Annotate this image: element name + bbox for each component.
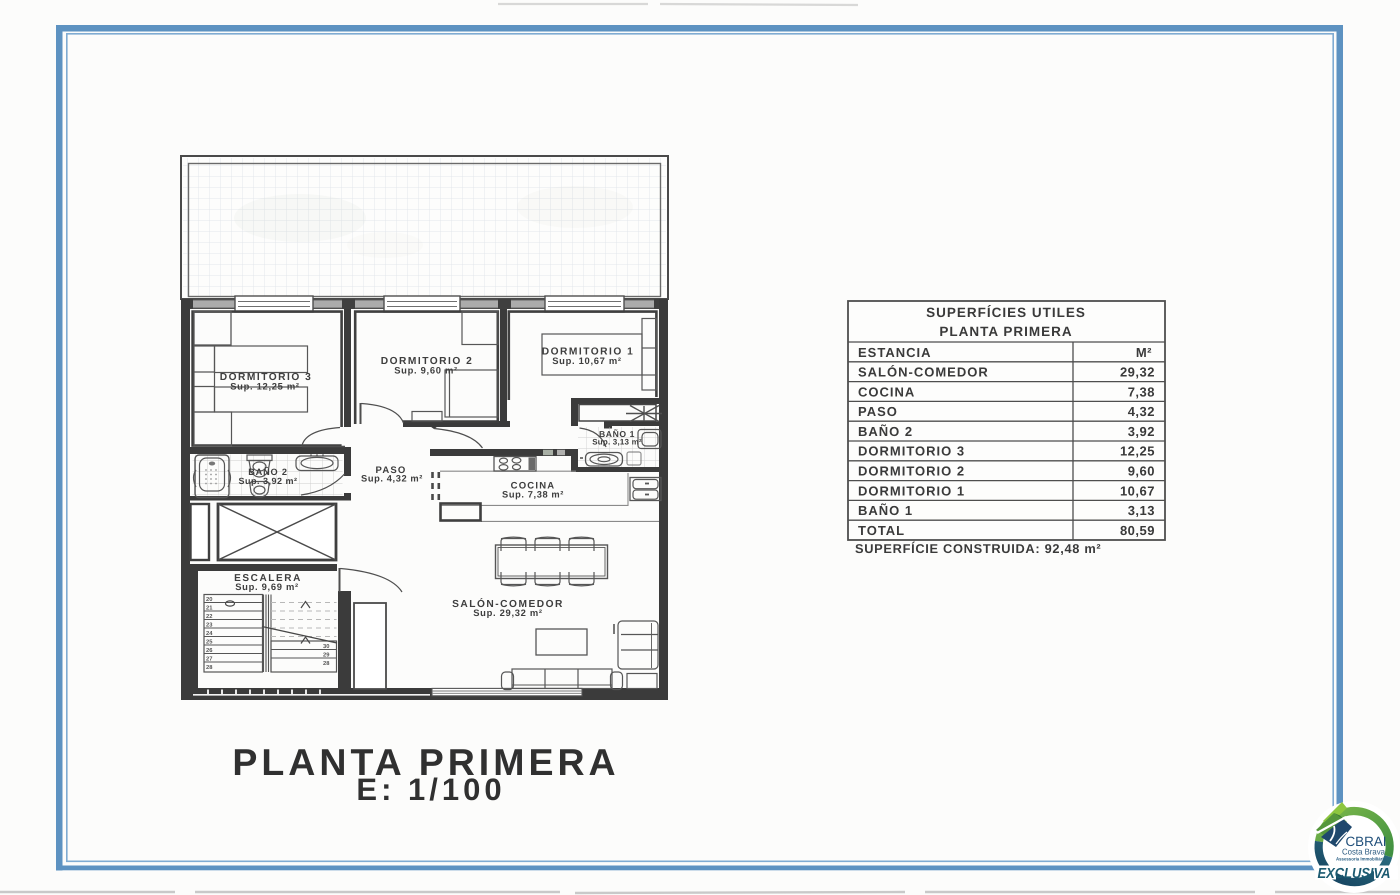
svg-text:22: 22 <box>206 613 212 620</box>
svg-text:DORMITORIO 3: DORMITORIO 3 <box>858 444 965 459</box>
svg-text:10,67: 10,67 <box>1120 483 1155 498</box>
svg-text:29,32: 29,32 <box>1120 365 1155 380</box>
svg-text:COCINA: COCINA <box>858 384 915 399</box>
svg-text:4,32: 4,32 <box>1128 404 1155 419</box>
svg-text:PASO: PASO <box>858 404 898 419</box>
svg-text:20: 20 <box>206 596 212 603</box>
svg-text:26: 26 <box>206 647 213 654</box>
svg-text:Sup. 3,92 m²: Sup. 3,92 m² <box>238 476 297 486</box>
svg-text:Costa Brava: Costa Brava <box>1342 846 1385 856</box>
svg-text:24: 24 <box>206 630 213 637</box>
svg-text:E: 1/100: E: 1/100 <box>356 772 505 807</box>
svg-text:ESTANCIA: ESTANCIA <box>858 345 931 360</box>
svg-text:Sup. 9,60 m²: Sup. 9,60 m² <box>394 365 458 376</box>
svg-text:Sup. 12,25 m²: Sup. 12,25 m² <box>230 381 300 392</box>
svg-text:TOTAL: TOTAL <box>858 523 905 538</box>
svg-text:9,60: 9,60 <box>1128 464 1155 479</box>
svg-text:BAÑO 2: BAÑO 2 <box>858 424 913 439</box>
svg-text:7,38: 7,38 <box>1128 384 1155 399</box>
svg-text:EXCLUSIVA: EXCLUSIVA <box>1318 866 1391 882</box>
svg-text:SUPERFÍCIES UTILES: SUPERFÍCIES UTILES <box>926 305 1086 320</box>
svg-text:28: 28 <box>206 664 213 671</box>
svg-text:BAÑO 1: BAÑO 1 <box>858 503 913 518</box>
svg-text:Sup. 9,69 m²: Sup. 9,69 m² <box>235 581 299 592</box>
svg-text:Sup. 4,32 m²: Sup. 4,32 m² <box>361 474 423 484</box>
svg-text:25: 25 <box>206 639 213 646</box>
svg-text:3,13: 3,13 <box>1128 503 1155 518</box>
svg-text:DORMITORIO 1: DORMITORIO 1 <box>858 483 965 498</box>
svg-text:Sup. 7,38 m²: Sup. 7,38 m² <box>502 490 564 500</box>
svg-text:Sup. 3,13 m²: Sup. 3,13 m² <box>592 438 642 447</box>
svg-text:Sup. 10,67 m²: Sup. 10,67 m² <box>552 355 622 366</box>
svg-text:23: 23 <box>206 622 213 629</box>
svg-text:DORMITORIO 2: DORMITORIO 2 <box>858 464 965 479</box>
svg-text:3,92: 3,92 <box>1128 424 1155 439</box>
svg-text:SALÓN-COMEDOR: SALÓN-COMEDOR <box>858 365 989 380</box>
svg-text:80,59: 80,59 <box>1120 523 1155 538</box>
svg-text:27: 27 <box>206 656 212 663</box>
svg-text:PLANTA PRIMERA: PLANTA PRIMERA <box>939 324 1072 339</box>
svg-text:12,25: 12,25 <box>1120 444 1155 459</box>
svg-text:SUPERFÍCIE CONSTRUIDA: 92,48 m: SUPERFÍCIE CONSTRUIDA: 92,48 m² <box>855 541 1101 556</box>
svg-text:29: 29 <box>323 652 330 659</box>
svg-text:21: 21 <box>206 605 213 612</box>
svg-text:Sup. 29,32 m²: Sup. 29,32 m² <box>473 607 543 618</box>
svg-text:30: 30 <box>323 643 329 650</box>
svg-text:Assessoria Immobiliària: Assessoria Immobiliària <box>1336 856 1386 861</box>
svg-text:M²: M² <box>1136 345 1152 360</box>
svg-text:28: 28 <box>323 660 330 667</box>
